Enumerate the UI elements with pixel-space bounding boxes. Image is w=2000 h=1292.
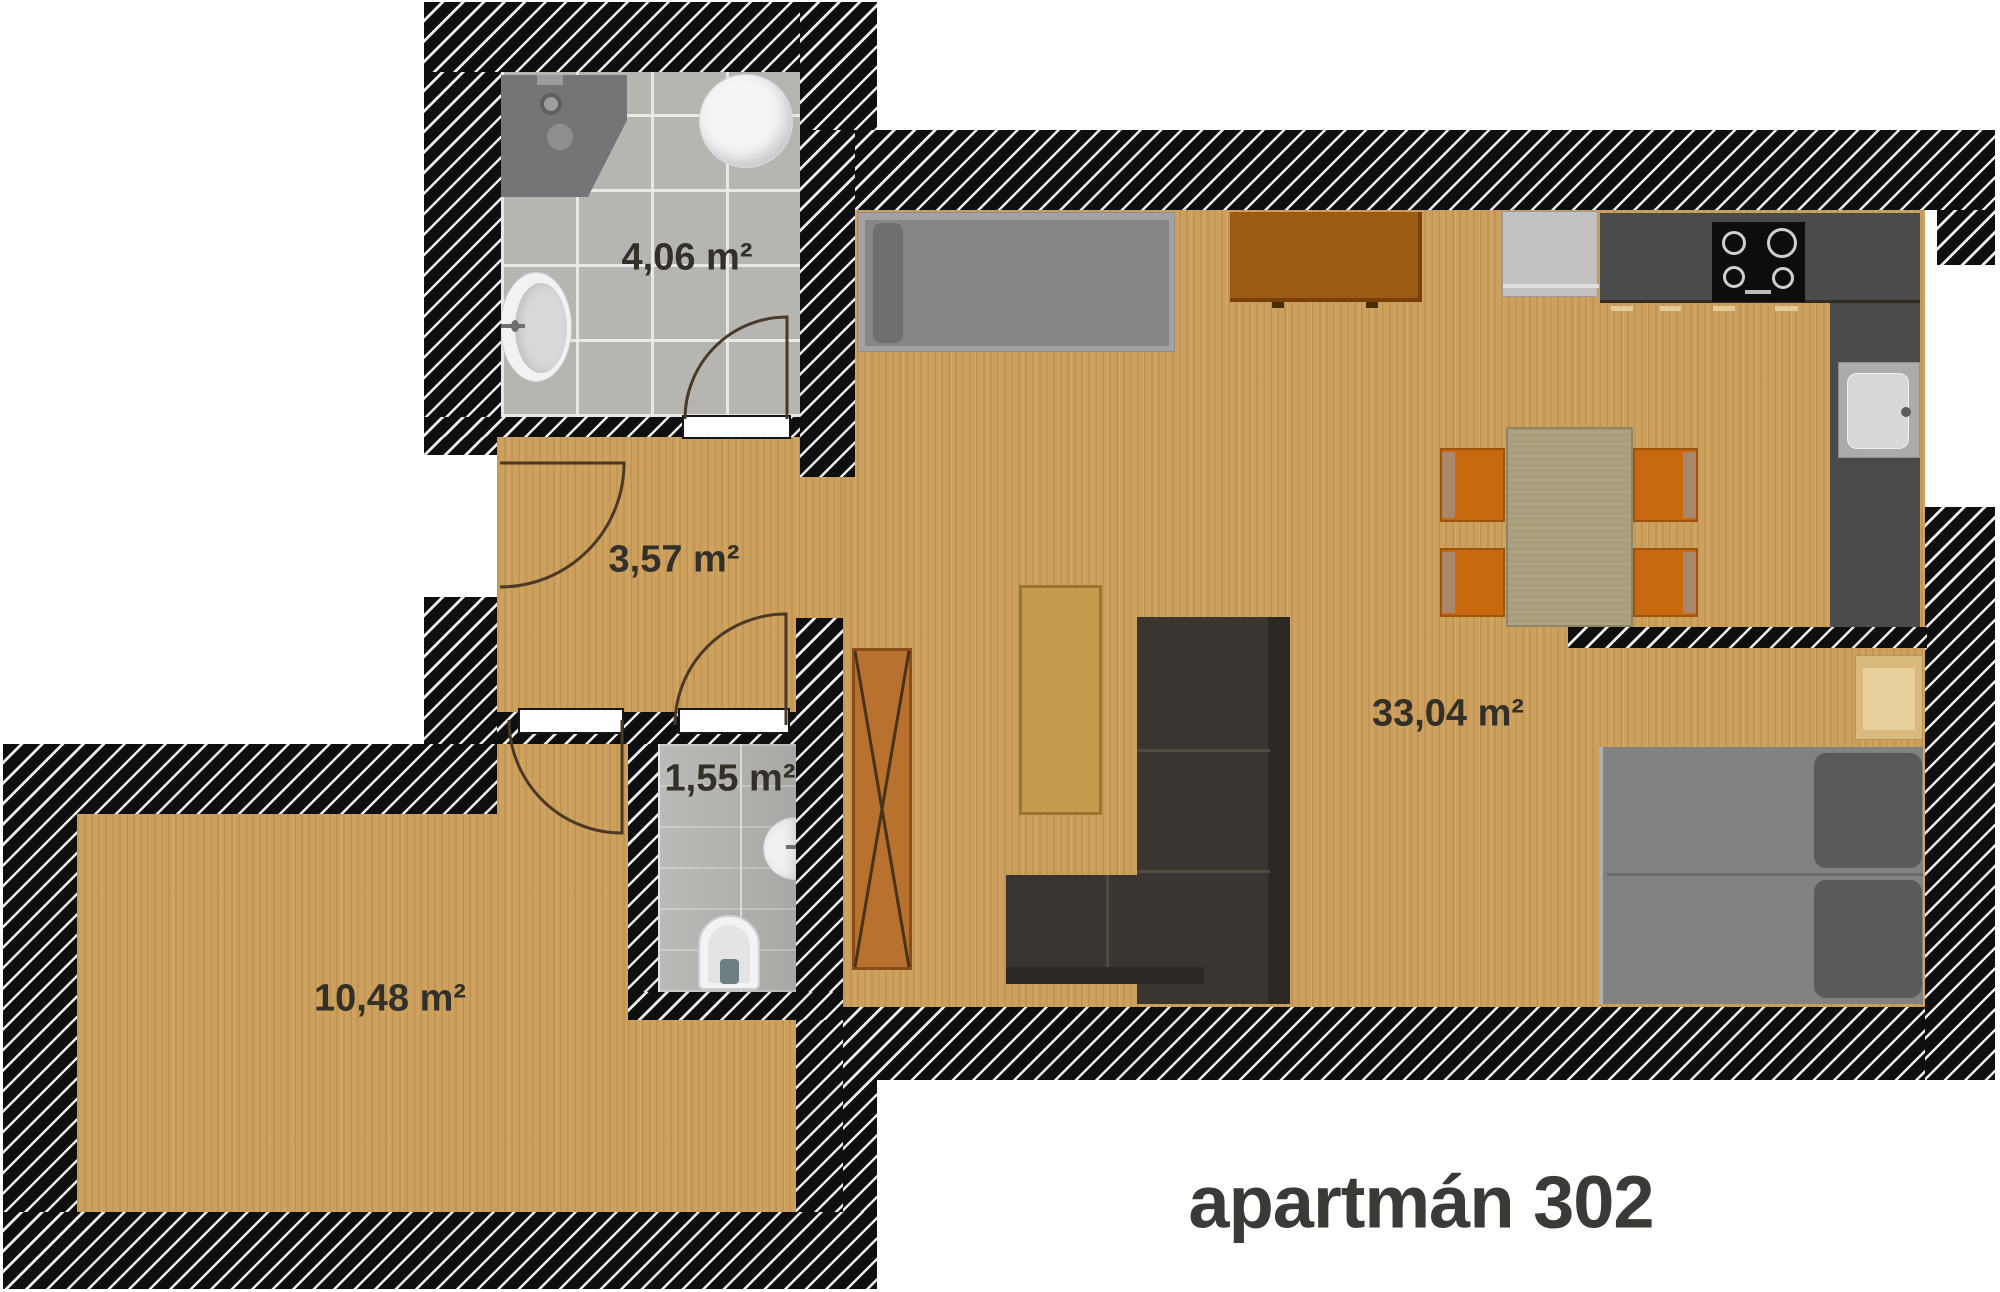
wall <box>1937 210 1995 265</box>
cabinet-handle <box>1775 306 1798 311</box>
floor-plan: 4,06 m² 3,57 m² 1,55 m² 10,48 m² 33,04 m… <box>0 0 2000 1292</box>
chair <box>1440 448 1505 522</box>
dresser <box>1230 212 1422 302</box>
single-bed <box>857 212 1175 352</box>
wall <box>424 597 497 744</box>
room-label-wc: 1,55 m² <box>665 758 796 801</box>
wall <box>1925 507 1995 1080</box>
toilet <box>698 915 760 990</box>
room-label-bathroom: 4,06 m² <box>622 237 753 280</box>
door-sill-bathroom <box>682 415 791 439</box>
room-floor-ext <box>628 1020 796 1212</box>
kitchen-counter-side <box>1830 303 1920 628</box>
room-floor-notch <box>497 744 628 814</box>
wall <box>3 744 497 814</box>
wall <box>628 744 658 1020</box>
partition-wall <box>1568 627 1927 648</box>
room-label-hallway: 3,57 m² <box>609 539 740 582</box>
fridge <box>1502 211 1598 297</box>
room-label-room: 10,48 m² <box>314 978 466 1021</box>
wall <box>800 2 877 130</box>
kitchen-sink <box>1838 362 1920 458</box>
cooktop <box>1712 222 1805 302</box>
washbasin <box>500 272 572 382</box>
wall <box>628 992 843 1020</box>
wall <box>3 744 77 1289</box>
chair <box>1440 548 1505 617</box>
door-sill-wc <box>678 708 790 734</box>
wall <box>796 618 843 1212</box>
wall <box>800 130 855 477</box>
coffee-table <box>1019 585 1102 815</box>
wall <box>3 1212 877 1289</box>
cabinet-handle <box>1713 306 1735 311</box>
room-label-living: 33,04 m² <box>1372 693 1524 736</box>
entrance-opening <box>424 455 497 597</box>
dining-table <box>1506 427 1633 627</box>
plan-title: apartmán 302 <box>1188 1160 1653 1245</box>
wall <box>424 437 497 455</box>
wall <box>855 130 1995 210</box>
door-sill-room <box>518 708 624 734</box>
sofa-chaise <box>1006 875 1204 984</box>
nightstand <box>1855 655 1923 740</box>
wall <box>843 1007 1995 1080</box>
dresser-foot <box>1366 302 1378 308</box>
dresser-foot <box>1272 302 1284 308</box>
cabinet-handle <box>1611 306 1633 311</box>
chair <box>1633 548 1698 617</box>
boiler <box>699 74 793 168</box>
wall <box>424 72 501 437</box>
double-bed <box>1599 747 1923 1004</box>
cabinet-handle <box>1660 306 1681 311</box>
chair <box>1633 448 1698 522</box>
wardrobe <box>852 648 912 970</box>
